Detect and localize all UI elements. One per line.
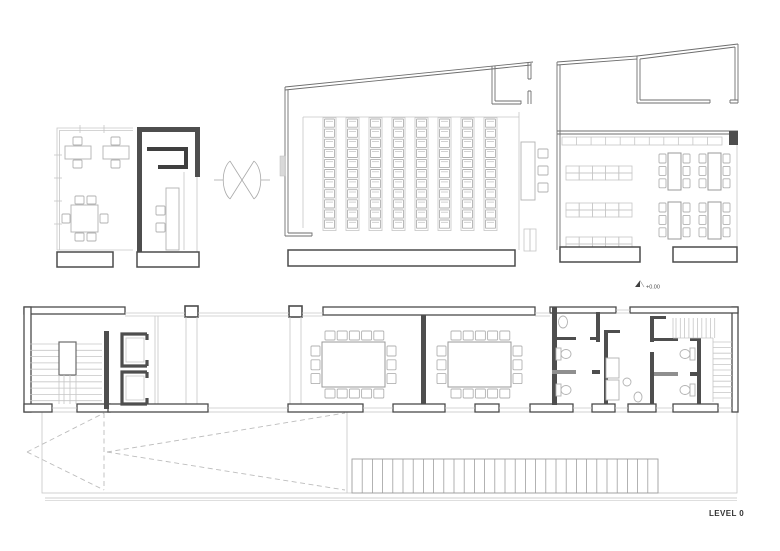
chair xyxy=(362,331,372,340)
chair xyxy=(659,203,666,212)
chair xyxy=(659,215,666,224)
auditorium-seat xyxy=(486,220,496,228)
auditorium-seat xyxy=(417,200,427,208)
auditorium-seat xyxy=(440,129,450,137)
chair xyxy=(73,137,82,145)
auditorium-seat xyxy=(394,119,404,127)
wall xyxy=(604,330,620,333)
chair xyxy=(513,346,522,356)
chair xyxy=(683,154,690,163)
auditorium-seat xyxy=(486,159,496,167)
chair xyxy=(723,179,730,188)
auditorium-seat xyxy=(325,180,335,188)
chair xyxy=(538,149,548,158)
chair xyxy=(683,215,690,224)
chair xyxy=(87,233,96,241)
sink-fixture xyxy=(559,316,568,328)
wall xyxy=(654,338,678,341)
auditorium-seat xyxy=(463,180,473,188)
wall xyxy=(592,370,600,374)
chair xyxy=(349,331,359,340)
level-label: LEVEL 0 xyxy=(709,509,744,518)
entry-step xyxy=(288,250,515,266)
auditorium-seat xyxy=(440,180,450,188)
chair xyxy=(311,346,320,356)
auditorium-seat xyxy=(371,190,381,198)
auditorium-seat xyxy=(417,149,427,157)
wall-corner xyxy=(729,131,738,145)
toilet-fixture xyxy=(680,384,695,396)
meeting-table xyxy=(322,342,385,387)
pillar xyxy=(289,306,302,317)
chair xyxy=(156,206,165,215)
auditorium-seat xyxy=(486,200,496,208)
auditorium-seat xyxy=(417,129,427,137)
auditorium-seat xyxy=(325,129,335,137)
entry-step xyxy=(57,252,113,267)
chair xyxy=(437,374,446,384)
auditorium-seat xyxy=(394,180,404,188)
auditorium-seat xyxy=(486,190,496,198)
chair xyxy=(437,360,446,370)
wall xyxy=(650,352,654,404)
wall xyxy=(24,307,125,314)
chair xyxy=(683,203,690,212)
classroom-table xyxy=(708,202,721,239)
auditorium-seat xyxy=(440,200,450,208)
auditorium-seat xyxy=(486,170,496,178)
auditorium-seat xyxy=(463,220,473,228)
auditorium-seat xyxy=(440,159,450,167)
auditorium-seat xyxy=(463,200,473,208)
toilet-fixture xyxy=(680,348,695,360)
wall xyxy=(104,331,109,409)
chair xyxy=(111,137,120,145)
auditorium-seat xyxy=(463,190,473,198)
auditorium-seat xyxy=(371,180,381,188)
auditorium-seat xyxy=(417,139,427,147)
chair xyxy=(451,331,461,340)
auditorium-seat xyxy=(371,200,381,208)
auditorium-seat xyxy=(394,139,404,147)
classroom-table-group xyxy=(659,153,690,190)
wall xyxy=(552,370,576,374)
wall xyxy=(552,337,576,340)
chair xyxy=(387,360,396,370)
auditorium-seat xyxy=(371,139,381,147)
classroom-table xyxy=(668,202,681,239)
chair xyxy=(325,331,335,340)
auditorium-seat xyxy=(348,190,358,198)
chair xyxy=(683,228,690,237)
chair xyxy=(100,214,108,223)
auditorium-seat xyxy=(348,180,358,188)
chair xyxy=(699,154,706,163)
auditorium-seat xyxy=(463,129,473,137)
auditorium-seat xyxy=(440,139,450,147)
wall xyxy=(550,307,616,313)
chair xyxy=(500,331,510,340)
chair xyxy=(62,214,70,223)
auditorium-seat xyxy=(325,210,335,218)
auditorium-seat xyxy=(417,220,427,228)
wall xyxy=(630,307,738,313)
auditorium-seat xyxy=(348,170,358,178)
auditorium-seat xyxy=(371,149,381,157)
chair xyxy=(437,346,446,356)
chair xyxy=(723,228,730,237)
wall xyxy=(732,307,738,412)
stair-landing xyxy=(59,342,76,375)
auditorium-seat xyxy=(348,159,358,167)
auditorium-seat xyxy=(348,129,358,137)
entry-step xyxy=(560,247,640,262)
chair xyxy=(659,166,666,175)
auditorium-seat xyxy=(417,170,427,178)
classroom-table-group xyxy=(659,202,690,239)
auditorium-seat xyxy=(394,159,404,167)
meeting-table xyxy=(448,342,511,387)
chair xyxy=(723,203,730,212)
auditorium-seat xyxy=(417,180,427,188)
auditorium-seat xyxy=(486,119,496,127)
wall xyxy=(654,372,678,376)
auditorium-seat xyxy=(417,210,427,218)
chair xyxy=(683,179,690,188)
auditorium-seat xyxy=(486,139,496,147)
auditorium-seat xyxy=(394,190,404,198)
auditorium-seat xyxy=(486,180,496,188)
chair xyxy=(488,331,498,340)
auditorium-seat xyxy=(325,170,335,178)
elevation-label: +0.00 xyxy=(646,285,660,291)
chair xyxy=(659,154,666,163)
auditorium-seat xyxy=(417,119,427,127)
auditorium-seat xyxy=(417,159,427,167)
auditorium-seat xyxy=(440,119,450,127)
floor-plan-drawing: +0.00 xyxy=(0,0,780,551)
cabinet xyxy=(606,358,619,378)
auditorium-seat xyxy=(371,129,381,137)
auditorium-seat xyxy=(440,170,450,178)
auditorium-seat xyxy=(325,190,335,198)
toilet-fixture xyxy=(556,348,571,360)
auditorium-seat xyxy=(486,149,496,157)
lectern-table xyxy=(521,142,535,200)
auditorium-seat xyxy=(463,159,473,167)
chair xyxy=(500,389,510,398)
wall xyxy=(323,307,535,315)
toilet-fixture xyxy=(556,384,571,396)
chair xyxy=(475,389,485,398)
auditorium-seat xyxy=(394,170,404,178)
auditorium-seat xyxy=(371,220,381,228)
chair xyxy=(75,233,84,241)
classroom-table-group xyxy=(699,153,730,190)
auditorium-seat xyxy=(371,210,381,218)
floor-drain xyxy=(623,378,631,386)
chair xyxy=(374,331,384,340)
classroom-table xyxy=(708,153,721,190)
chair xyxy=(659,228,666,237)
chair xyxy=(463,389,473,398)
side-door xyxy=(280,156,285,176)
pillar xyxy=(185,306,198,317)
chair xyxy=(699,215,706,224)
auditorium-seat xyxy=(348,200,358,208)
chair xyxy=(156,223,165,232)
auditorium-seat xyxy=(325,220,335,228)
auditorium-seat xyxy=(417,190,427,198)
auditorium-seat xyxy=(394,220,404,228)
chair xyxy=(538,183,548,192)
auditorium-seat xyxy=(440,190,450,198)
sink-fixture xyxy=(634,392,642,402)
chair xyxy=(362,389,372,398)
auditorium-seat xyxy=(325,119,335,127)
auditorium-seat xyxy=(394,129,404,137)
chair xyxy=(325,389,335,398)
auditorium-seat xyxy=(394,210,404,218)
chair xyxy=(723,166,730,175)
chair xyxy=(73,160,82,168)
chair xyxy=(683,166,690,175)
chair xyxy=(659,179,666,188)
auditorium-seat xyxy=(371,159,381,167)
chair xyxy=(87,196,96,204)
chair xyxy=(513,374,522,384)
chair xyxy=(374,389,384,398)
chair xyxy=(451,389,461,398)
auditorium-seat xyxy=(348,149,358,157)
auditorium-seat xyxy=(440,220,450,228)
chair xyxy=(475,331,485,340)
auditorium-seat xyxy=(325,159,335,167)
auditorium-seat xyxy=(348,119,358,127)
auditorium-seat xyxy=(371,119,381,127)
chair xyxy=(337,389,347,398)
chair xyxy=(699,203,706,212)
wall xyxy=(590,337,600,340)
wall xyxy=(650,316,666,319)
auditorium-seat xyxy=(394,200,404,208)
chair xyxy=(723,154,730,163)
entry-step xyxy=(673,247,737,262)
chair xyxy=(387,374,396,384)
partition-wall xyxy=(421,315,426,404)
auditorium-seat xyxy=(463,149,473,157)
wall xyxy=(24,307,31,412)
auditorium-seat xyxy=(325,149,335,157)
chair xyxy=(75,196,84,204)
entry-step xyxy=(137,252,199,267)
chair xyxy=(311,374,320,384)
auditorium-seat xyxy=(486,210,496,218)
classroom-table xyxy=(668,153,681,190)
chair xyxy=(349,389,359,398)
chair xyxy=(311,360,320,370)
chair xyxy=(538,166,548,175)
canvas-background xyxy=(0,0,780,551)
chair xyxy=(699,228,706,237)
auditorium-seat xyxy=(348,139,358,147)
wall xyxy=(697,338,701,404)
auditorium-seat xyxy=(486,129,496,137)
auditorium-seat xyxy=(348,220,358,228)
auditorium-seat xyxy=(394,149,404,157)
auditorium-seat xyxy=(440,210,450,218)
chair xyxy=(723,215,730,224)
auditorium-seat xyxy=(463,139,473,147)
chair xyxy=(463,331,473,340)
auditorium-seat xyxy=(463,170,473,178)
auditorium-seat xyxy=(440,149,450,157)
auditorium-seat xyxy=(325,139,335,147)
classroom-table-group xyxy=(699,202,730,239)
auditorium-seat xyxy=(371,170,381,178)
chair xyxy=(387,346,396,356)
chair xyxy=(699,166,706,175)
chair xyxy=(111,160,120,168)
auditorium-seat xyxy=(463,119,473,127)
chair xyxy=(513,360,522,370)
chair xyxy=(337,331,347,340)
cabinet xyxy=(606,380,619,400)
auditorium-seat xyxy=(325,200,335,208)
auditorium-seat xyxy=(463,210,473,218)
chair xyxy=(488,389,498,398)
wall xyxy=(650,316,654,342)
auditorium-seat xyxy=(348,210,358,218)
chair xyxy=(699,179,706,188)
